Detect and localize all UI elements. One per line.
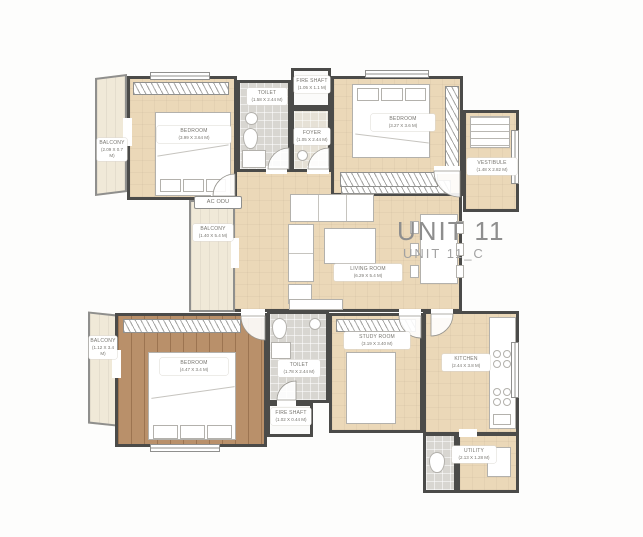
- room-label-utility: UTILITY (2.13 X 1.28 M): [452, 446, 496, 463]
- room-dims: (1.48 X 2.82 M): [468, 167, 516, 173]
- room-label-balcony-bottom-left: BALCONY (1.12 X 3.4 M): [89, 336, 117, 359]
- room-dims: (1.02 X 0.44 M): [272, 417, 310, 423]
- unit-subtitle: UNIT 11_C: [403, 246, 485, 261]
- room-dims: (2.13 X 1.28 M): [453, 455, 495, 461]
- room-dims: (2.44 X 3.8 M): [443, 363, 489, 369]
- room-name: FIRE SHAFT: [272, 410, 310, 417]
- room-label-fire-shaft-top: FIRE SHAFT (1.05 X 1.1 M): [294, 76, 330, 93]
- room-label-study: STUDY ROOM (3.19 X 3.40 M): [344, 332, 410, 349]
- floor-plan: BALCONY (2.09 X 0.7 M) BEDROOM (3.99 X 3…: [0, 0, 643, 537]
- pillow: [160, 179, 181, 192]
- room-label-balcony-top-left: BALCONY (2.09 X 0.7 M): [97, 138, 127, 161]
- day-bed: [346, 352, 396, 424]
- hob-burner: [503, 350, 511, 358]
- door-opening: [399, 309, 421, 318]
- window: [150, 444, 220, 452]
- room-name: BALCONY: [90, 338, 116, 345]
- hob-burner: [493, 360, 501, 368]
- sofa: [290, 194, 374, 222]
- room-dims: (3.27 X 3.6 M): [372, 123, 434, 129]
- tv-unit: [289, 299, 343, 310]
- door-opening: [277, 398, 296, 406]
- door-opening: [434, 166, 460, 174]
- room-name: BEDROOM: [161, 360, 227, 367]
- room-name: KITCHEN: [443, 356, 489, 363]
- room-dims: (1.05 X 2.44 M): [295, 137, 329, 143]
- window: [365, 70, 429, 78]
- washbasin: [297, 150, 308, 161]
- door-opening: [459, 429, 477, 437]
- room-name: BALCONY: [194, 226, 232, 233]
- room-label-bedroom-top-left: BEDROOM (3.99 X 3.64 M): [157, 126, 231, 143]
- pillow: [180, 425, 205, 439]
- room-name: AC ODU: [195, 199, 241, 206]
- room-label-balcony-middle: BALCONY (1.40 X 5.4 M): [193, 224, 233, 241]
- room-name: TOILET: [248, 90, 286, 97]
- wardrobe: [133, 82, 229, 95]
- door-opening: [231, 238, 239, 268]
- wardrobe: [340, 172, 438, 187]
- room-name: TOILET: [279, 362, 319, 369]
- dining-chair: [456, 265, 464, 278]
- wardrobe: [445, 86, 459, 174]
- room-label-foyer: FOYER (1.05 X 2.44 M): [294, 128, 330, 145]
- room-dims: (1.40 X 5.4 M): [194, 233, 232, 239]
- pillow: [381, 88, 403, 101]
- pillow: [183, 179, 204, 192]
- dining-chair: [410, 265, 419, 278]
- room-label-living: LIVING ROOM (6.29 X 5.4 M): [334, 264, 402, 281]
- room-dims: (1.78 X 2.44 M): [279, 369, 319, 375]
- hob-burner: [503, 388, 511, 396]
- room-label-bedroom-bottom-left: BEDROOM (4.47 X 3.4 M): [160, 358, 228, 375]
- room-name: FIRE SHAFT: [295, 78, 329, 85]
- room-dims: (4.47 X 3.4 M): [161, 367, 227, 373]
- staircase: [470, 116, 510, 148]
- window: [150, 72, 210, 80]
- washbasin: [309, 318, 321, 330]
- washbasin: [245, 112, 258, 125]
- room-label-fire-shaft-bottom: FIRE SHAFT (1.02 X 0.44 M): [271, 408, 311, 425]
- room-label-kitchen: KITCHEN (2.44 X 3.8 M): [442, 354, 490, 371]
- room-dims: (1.05 X 1.1 M): [295, 85, 329, 91]
- hob-burner: [503, 398, 511, 406]
- coffee-table: [324, 228, 376, 264]
- window: [511, 342, 519, 398]
- room-name: BEDROOM: [158, 128, 230, 135]
- door-opening: [266, 166, 287, 174]
- sofa: [288, 224, 314, 282]
- door-opening: [431, 309, 453, 318]
- room-name: LIVING ROOM: [335, 266, 401, 273]
- window: [511, 130, 519, 184]
- room-label-bedroom-top-right: BEDROOM (3.27 X 3.6 M): [371, 114, 435, 131]
- room-name: BEDROOM: [372, 116, 434, 123]
- pillow: [405, 88, 426, 101]
- room-label-toilet-top: TOILET (1.58 X 2.44 M): [247, 88, 287, 105]
- shower: [242, 150, 266, 168]
- room-dims: (1.12 X 3.4 M): [90, 345, 116, 357]
- hob-burner: [493, 388, 501, 396]
- wardrobe: [336, 319, 416, 332]
- room-dims: (3.19 X 3.40 M): [345, 341, 409, 347]
- pillow: [153, 425, 178, 439]
- room-dims: (6.29 X 5.4 M): [335, 273, 401, 279]
- room-balcony-middle-left: [189, 200, 235, 312]
- hob-burner: [493, 350, 501, 358]
- room-label-ac-odu: AC ODU: [194, 196, 242, 209]
- room-dims: (2.09 X 0.7 M): [98, 147, 126, 159]
- room-name: UTILITY: [453, 448, 495, 455]
- hob-burner: [503, 360, 511, 368]
- door-opening: [241, 309, 265, 318]
- kitchen-sink: [493, 414, 511, 425]
- hob-burner: [493, 398, 501, 406]
- room-dims: (3.99 X 3.64 M): [158, 135, 230, 141]
- room-name: BALCONY: [98, 140, 126, 147]
- room-dims: (1.58 X 2.44 M): [248, 97, 286, 103]
- door-opening: [307, 166, 329, 174]
- shower: [271, 342, 291, 359]
- pillow: [206, 179, 226, 192]
- room-name: VESTIBULE: [468, 160, 516, 167]
- pillow: [357, 88, 379, 101]
- room-label-vestibule: VESTIBULE (1.48 X 2.82 M): [467, 158, 517, 175]
- pillow: [207, 425, 232, 439]
- room-label-toilet-bottom: TOILET (1.78 X 2.44 M): [278, 360, 320, 377]
- room-name: FOYER: [295, 130, 329, 137]
- room-name: STUDY ROOM: [345, 334, 409, 341]
- unit-title: UNIT 11: [397, 216, 505, 247]
- wardrobe: [123, 319, 241, 333]
